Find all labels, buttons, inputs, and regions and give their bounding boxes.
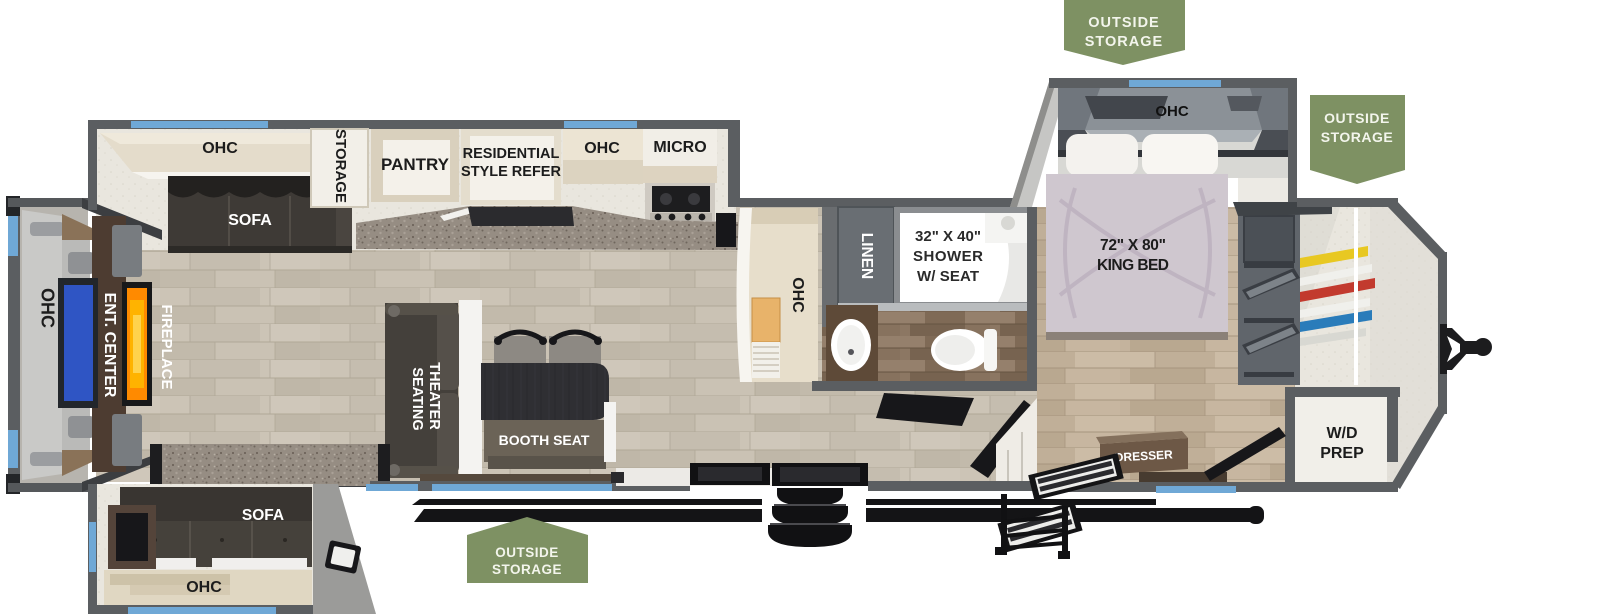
svg-text:STORAGE: STORAGE: [1085, 34, 1163, 50]
svg-text:OUTSIDE: OUTSIDE: [495, 545, 559, 560]
svg-text:OHC: OHC: [1155, 103, 1189, 120]
svg-text:OUTSIDE: OUTSIDE: [1324, 110, 1390, 126]
svg-text:BOOTH SEAT: BOOTH SEAT: [499, 432, 590, 448]
svg-text:SEATING: SEATING: [409, 367, 425, 430]
svg-text:SOFA: SOFA: [228, 212, 272, 229]
svg-text:MICRO: MICRO: [653, 139, 706, 156]
svg-text:OHC: OHC: [789, 277, 806, 313]
svg-text:W/D: W/D: [1326, 425, 1357, 442]
svg-text:ENT. CENTER: ENT. CENTER: [101, 293, 118, 398]
svg-text:OHC: OHC: [202, 140, 238, 157]
svg-text:STORAGE: STORAGE: [332, 129, 349, 203]
svg-text:72" X 80": 72" X 80": [1100, 237, 1166, 254]
svg-text:W/ SEAT: W/ SEAT: [917, 268, 979, 285]
svg-text:OHC: OHC: [186, 579, 222, 596]
svg-text:32" X 40": 32" X 40": [915, 228, 981, 245]
svg-text:STYLE REFER: STYLE REFER: [461, 164, 561, 180]
svg-text:LINEN: LINEN: [858, 233, 875, 280]
svg-text:RESIDENTIAL: RESIDENTIAL: [463, 146, 560, 162]
svg-text:STORAGE: STORAGE: [1321, 129, 1393, 145]
svg-text:STORAGE: STORAGE: [492, 562, 562, 577]
svg-text:SOFA: SOFA: [242, 507, 284, 524]
svg-text:SHOWER: SHOWER: [913, 248, 983, 265]
svg-text:FIREPLACE: FIREPLACE: [158, 304, 175, 389]
svg-text:KING BED: KING BED: [1097, 257, 1169, 274]
svg-text:OUTSIDE: OUTSIDE: [1088, 15, 1159, 31]
svg-text:THEATER: THEATER: [426, 362, 442, 430]
svg-text:OHC: OHC: [37, 288, 57, 328]
svg-text:PREP: PREP: [1320, 445, 1364, 462]
svg-text:OHC: OHC: [584, 140, 620, 157]
svg-text:PANTRY: PANTRY: [381, 155, 450, 174]
